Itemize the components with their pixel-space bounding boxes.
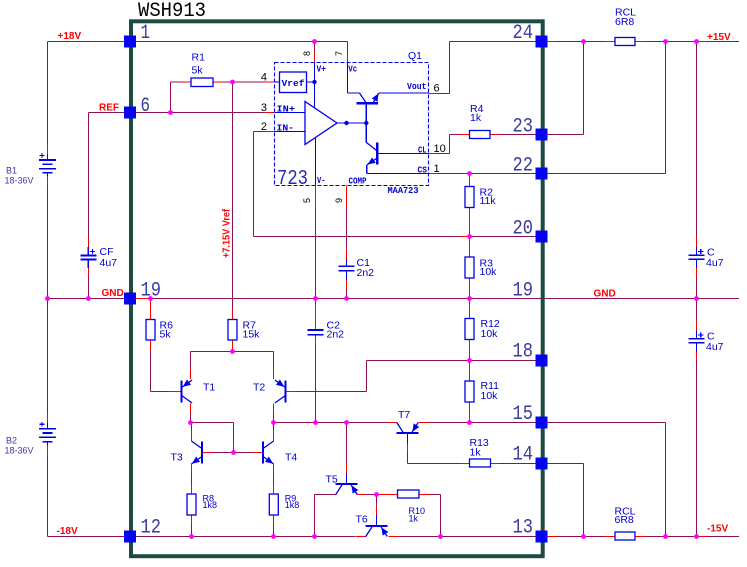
svg-text:Vout: Vout <box>407 82 427 92</box>
svg-text:4u7: 4u7 <box>706 341 724 353</box>
svg-text:24: 24 <box>513 22 534 45</box>
svg-text:1: 1 <box>434 163 440 175</box>
svg-text:9: 9 <box>334 198 344 203</box>
svg-text:18-36V: 18-36V <box>5 176 34 186</box>
svg-text:Q1: Q1 <box>408 50 422 62</box>
svg-text:4u7: 4u7 <box>100 257 118 269</box>
svg-text:11k: 11k <box>480 195 497 207</box>
svg-text:1k: 1k <box>470 447 482 459</box>
svg-text:23: 23 <box>513 116 534 139</box>
svg-text:V-: V- <box>317 176 326 186</box>
svg-text:18-36V: 18-36V <box>5 446 34 456</box>
svg-text:2n2: 2n2 <box>357 267 375 279</box>
svg-text:T6: T6 <box>356 514 368 526</box>
svg-text:13: 13 <box>513 517 534 540</box>
svg-text:19: 19 <box>513 280 534 303</box>
svg-text:723: 723 <box>277 168 308 191</box>
svg-text:MAA723: MAA723 <box>388 185 419 196</box>
svg-text:Vc: Vc <box>348 65 357 75</box>
svg-text:1k8: 1k8 <box>285 500 300 510</box>
svg-text:20: 20 <box>513 218 534 241</box>
svg-text:4u7: 4u7 <box>706 257 724 269</box>
svg-text:5k: 5k <box>192 65 204 77</box>
svg-text:IN-: IN- <box>277 124 295 134</box>
svg-text:B2: B2 <box>6 436 17 446</box>
svg-text:10k: 10k <box>481 328 499 340</box>
svg-text:T3: T3 <box>171 452 183 464</box>
svg-text:4: 4 <box>261 72 267 84</box>
svg-text:15: 15 <box>513 403 534 426</box>
svg-text:1k8: 1k8 <box>203 500 218 510</box>
svg-text:15k: 15k <box>243 329 261 341</box>
svg-text:T2: T2 <box>253 382 265 394</box>
svg-text:2n2: 2n2 <box>327 329 345 341</box>
svg-text:T4: T4 <box>285 452 297 464</box>
svg-text:B1: B1 <box>6 166 17 176</box>
svg-text:10k: 10k <box>480 266 498 278</box>
svg-text:T1: T1 <box>203 382 215 394</box>
svg-text:1k: 1k <box>470 112 482 124</box>
svg-text:T5: T5 <box>326 474 338 486</box>
svg-text:IN+: IN+ <box>277 105 296 115</box>
svg-text:6: 6 <box>141 95 151 118</box>
svg-text:10k: 10k <box>481 390 499 402</box>
svg-text:19: 19 <box>141 280 162 303</box>
svg-text:6: 6 <box>434 83 440 95</box>
svg-text:1: 1 <box>141 22 151 45</box>
svg-text:22: 22 <box>513 155 534 178</box>
svg-text:COMP: COMP <box>349 177 367 187</box>
svg-text:5: 5 <box>302 198 312 203</box>
svg-text:REF: REF <box>99 103 119 114</box>
svg-text:10: 10 <box>434 143 446 155</box>
svg-text:8: 8 <box>302 51 312 56</box>
svg-text:7: 7 <box>334 51 344 56</box>
svg-text:-18V: -18V <box>57 526 78 537</box>
svg-text:V+: V+ <box>317 65 327 75</box>
svg-text:+15V: +15V <box>707 32 731 43</box>
svg-text:CS: CS <box>418 166 428 176</box>
svg-text:CL: CL <box>418 146 427 156</box>
svg-text:1k: 1k <box>409 513 419 523</box>
svg-text:+18V: +18V <box>58 31 82 42</box>
svg-text:+7.15V Vref: +7.15V Vref <box>222 208 233 258</box>
svg-text:6R8: 6R8 <box>615 16 634 28</box>
svg-text:WSH913: WSH913 <box>138 0 206 23</box>
svg-text:18: 18 <box>513 341 534 364</box>
svg-text:GND: GND <box>594 289 616 300</box>
svg-text:14: 14 <box>513 444 534 467</box>
svg-text:3: 3 <box>261 102 267 114</box>
svg-text:Vref: Vref <box>282 79 305 89</box>
svg-text:-15V: -15V <box>707 524 728 535</box>
svg-text:6R8: 6R8 <box>615 514 634 526</box>
svg-text:5k: 5k <box>160 329 172 341</box>
svg-text:R1: R1 <box>192 52 206 64</box>
svg-text:12: 12 <box>141 517 162 540</box>
svg-text:T7: T7 <box>398 409 410 421</box>
svg-text:2: 2 <box>261 121 267 133</box>
svg-text:GND: GND <box>102 288 124 299</box>
